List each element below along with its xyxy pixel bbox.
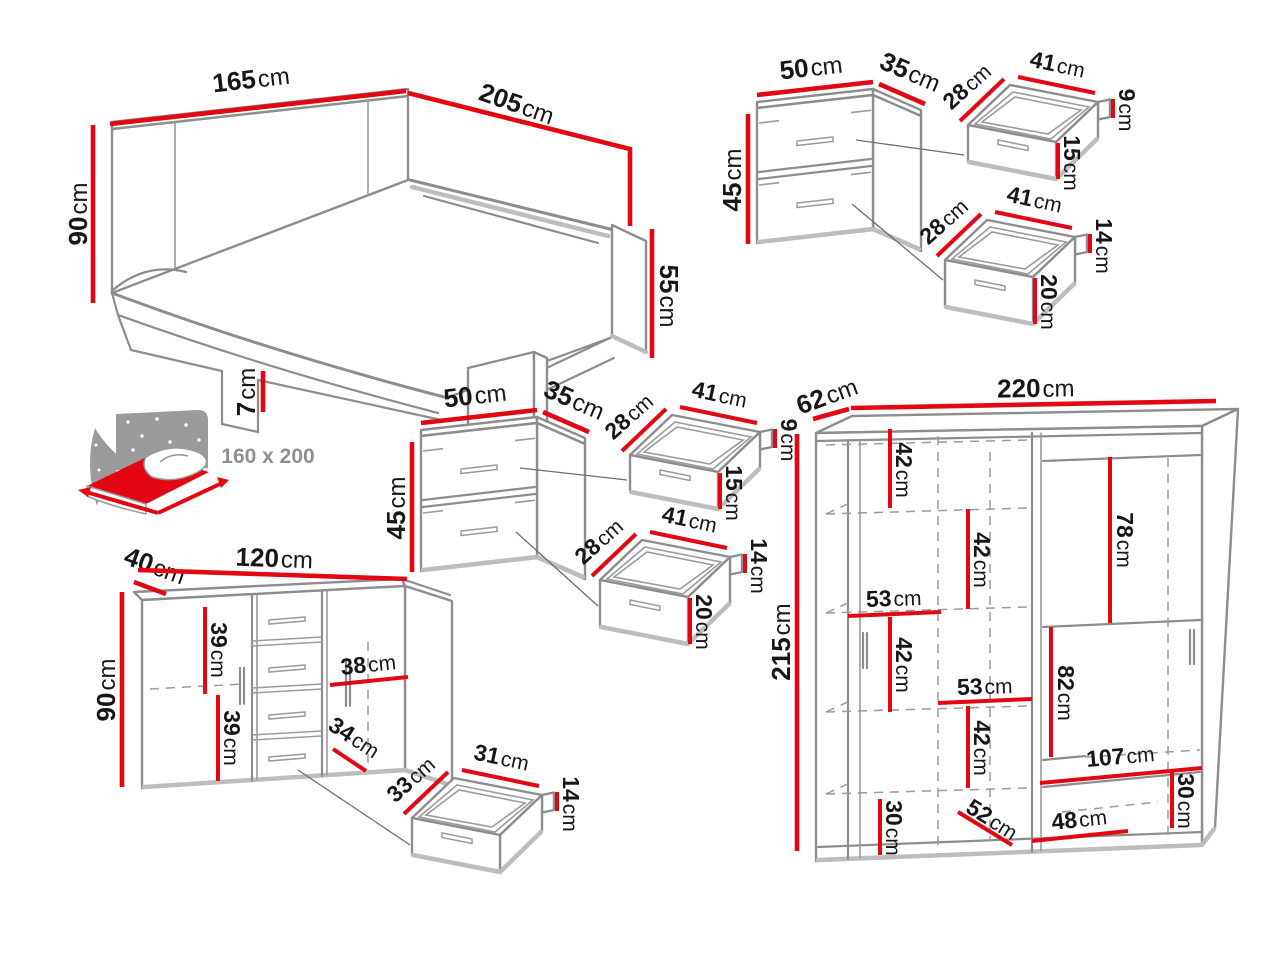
dim-label: 40cm <box>120 541 189 591</box>
nightstand-top-right: 45cm 50cm 35cm 28cm 41cm 9cm 15cm 28cm <box>717 46 1140 330</box>
dim-label: 90cm <box>91 659 121 722</box>
dim-label: 42cm <box>891 637 917 693</box>
dresser-height-dim: 90cm <box>91 592 122 787</box>
bed-length-dim: 205cm <box>408 77 630 226</box>
dim-label: 42cm <box>969 532 995 588</box>
dim-label: 30cm <box>1173 773 1199 829</box>
dim-label-width: 41cm <box>690 376 750 413</box>
bed-foot-height-dim-label: 55cm <box>654 265 684 328</box>
wardrobe-height-dim: 215cm <box>766 434 797 851</box>
wardrobe-side-face <box>1202 409 1238 845</box>
dim-label: 53cm <box>956 672 1012 700</box>
bed-base-top-edge <box>118 315 438 413</box>
dim-label-back-height: 9cm <box>1114 89 1140 132</box>
dim-label: 35cm <box>876 46 946 98</box>
nightstand1-lower-drawer: 28cm 41cm 14cm 20cm <box>914 181 1117 330</box>
nightstand2-lower-drawer: 28cm 41cm 14cm 20cm <box>569 501 772 650</box>
dim-label-back-height: 14cm <box>746 538 772 594</box>
dim-label: 45cm <box>381 477 411 540</box>
dim-label: 215cm <box>766 603 796 680</box>
wardrobe-front-face <box>816 426 1202 861</box>
nightstand1-upper-drawer: 28cm 41cm 9cm 15cm <box>937 46 1140 191</box>
bed-leg-height-dim: 7cm <box>231 368 263 416</box>
bed-footboard-right-panel <box>612 225 646 352</box>
dresser-drawing <box>134 579 452 845</box>
bed-foot-height-dim: 55cm <box>652 229 684 358</box>
dim-label: 42cm <box>969 720 995 776</box>
bed-size-icon: 160 x 200 <box>78 410 315 514</box>
dim-label: 39cm <box>206 622 232 678</box>
dim-label-width: 31cm <box>472 739 532 776</box>
nightstand1-height-dim: 45cm <box>717 114 748 244</box>
dim-label-height: 14cm <box>558 776 584 832</box>
drawer-box <box>630 415 772 509</box>
dim-label-back-height: 14cm <box>1091 218 1117 274</box>
wardrobe-width-dim: 220cm <box>851 372 1216 408</box>
drawer-box <box>412 778 554 872</box>
dim-label-front-height: 20cm <box>691 594 717 650</box>
dim-label-width: 41cm <box>1028 46 1088 83</box>
dim-label: 45cm <box>717 149 747 212</box>
dim-label: 50cm <box>778 49 844 86</box>
dim-label: 82cm <box>1053 665 1079 721</box>
dim-label-front-height: 20cm <box>1036 274 1062 330</box>
dim-label-front-height: 15cm <box>721 465 747 521</box>
dim-label: 35cm <box>540 374 610 426</box>
dim-label: 39cm <box>219 710 245 766</box>
bed-leg-height-dim-label: 7cm <box>231 368 261 416</box>
dim-label: 53cm <box>865 584 921 612</box>
dresser-side-face <box>405 586 452 786</box>
bed-headboard-height-dim-label: 90cm <box>63 183 93 246</box>
dim-label-front-height: 15cm <box>1059 135 1085 191</box>
bed-icon-size-label: 160 x 200 <box>221 445 314 468</box>
dresser-depth-dim: 40cm <box>120 541 189 594</box>
nightstand1-width-dim: 50cm <box>757 49 873 95</box>
wardrobe-bottom-right-height-dim: 30cm <box>1172 772 1199 829</box>
drawer-box <box>600 540 742 644</box>
dim-label: 78cm <box>1112 512 1138 568</box>
dim-label: 30cm <box>881 800 907 856</box>
dresser: 40cm 120cm 90cm 39cm 39cm 38cm 34cm <box>91 541 584 872</box>
bed-side-rail <box>410 180 614 230</box>
nightstand-cabinet <box>421 417 585 579</box>
drawer-box <box>945 220 1087 324</box>
bed-headboard-height-dim: 90cm <box>63 125 93 303</box>
nightstand2-height-dim: 45cm <box>381 442 412 572</box>
dim-label: 42cm <box>891 442 917 498</box>
furniture-dimensions-diagram: 165cm 205cm 90cm 55cm 7cm <box>0 0 1285 963</box>
nightstand-cabinet <box>757 89 921 251</box>
bed-base-left-edge <box>112 293 131 350</box>
bed-width-dim-label: 165cm <box>211 60 291 99</box>
wardrobe: 62cm 220cm 215cm 42cm 42cm 53cm 42cm 53 <box>766 371 1238 861</box>
bed-headboard-panel <box>112 96 408 293</box>
dim-label: 220cm <box>997 372 1075 403</box>
bed-rail-shadow <box>412 187 608 236</box>
wardrobe-bottom-left-height-dim: 30cm <box>880 799 907 856</box>
drawer-box <box>968 85 1110 179</box>
nightstand2-upper-drawer: 28cm 41cm 9cm 15cm <box>599 376 802 521</box>
dim-label-width: 41cm <box>1005 181 1065 218</box>
bed-mattress-front-edge <box>112 293 448 398</box>
wardrobe-depth-dim: 62cm <box>792 371 861 421</box>
dim-label: 120cm <box>235 542 313 575</box>
